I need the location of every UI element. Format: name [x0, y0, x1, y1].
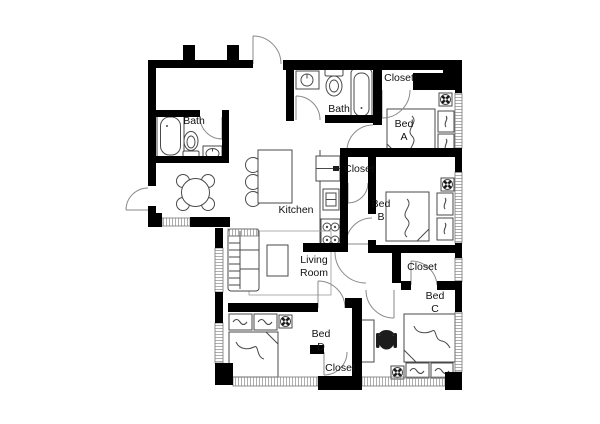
svg-text:Living: Living — [300, 254, 328, 266]
svg-text:Bed: Bed — [372, 198, 391, 210]
closet-hall-label: Closet — [344, 163, 374, 175]
floor-plan-canvas: Bath Bath Closet Closet Kitchen Bed A Be… — [0, 0, 600, 424]
ceiling-fan-icon — [279, 315, 292, 328]
svg-text:Room: Room — [300, 267, 328, 279]
closet-bed-d-label: Closet — [325, 362, 355, 374]
svg-text:D: D — [317, 341, 325, 353]
dresser-icon — [229, 314, 277, 330]
kitchen-sink-icon — [323, 189, 339, 210]
nightstand-icon — [437, 193, 453, 240]
toilet-icon — [325, 69, 343, 96]
office-chair-icon — [376, 331, 397, 350]
closet-hall-door-arc — [348, 183, 368, 203]
bath-top-label: Bath — [328, 103, 350, 115]
closet-top-right-label: Closet — [384, 72, 414, 84]
desk-icon — [361, 320, 374, 362]
bed-c-label: Bed C — [426, 290, 445, 315]
bed-icon — [386, 192, 429, 241]
closet-bed-c-label: Closet — [407, 261, 437, 273]
svg-text:B: B — [377, 211, 384, 223]
svg-text:Bed: Bed — [395, 118, 414, 130]
bed-c-door-arc — [366, 290, 394, 318]
coffee-table-icon — [267, 245, 288, 276]
toilet-icon — [183, 132, 199, 160]
ceiling-fan-icon — [441, 178, 454, 191]
entry-door-arc — [126, 188, 148, 210]
floor-plan: Bath Bath Closet Closet Kitchen Bed A Be… — [0, 0, 600, 424]
refrigerator-icon — [316, 156, 340, 181]
sink-icon — [296, 71, 319, 89]
bath-top-door-arc — [296, 96, 320, 120]
sofa-icon — [228, 229, 259, 291]
bathtub-icon — [157, 113, 184, 159]
svg-text:Bed: Bed — [312, 328, 331, 340]
bed-d-door-arc — [318, 281, 345, 308]
bed-icon — [229, 332, 278, 377]
svg-text:Bed: Bed — [426, 290, 445, 302]
bath-left-label: Bath — [183, 115, 205, 127]
svg-text:A: A — [400, 131, 407, 143]
living-room-label: Living Room — [300, 254, 328, 279]
kitchen-island-icon — [258, 150, 292, 203]
ceiling-fan-icon — [439, 93, 452, 106]
top-door-arc — [253, 36, 281, 64]
bed-icon — [404, 314, 455, 362]
hall-door-arc — [335, 252, 366, 283]
svg-text:C: C — [431, 303, 439, 315]
kitchen-label: Kitchen — [278, 204, 313, 216]
bathtub-icon — [351, 69, 372, 120]
dining-table-icon — [177, 175, 215, 211]
bed-a-door-arc — [347, 125, 373, 151]
